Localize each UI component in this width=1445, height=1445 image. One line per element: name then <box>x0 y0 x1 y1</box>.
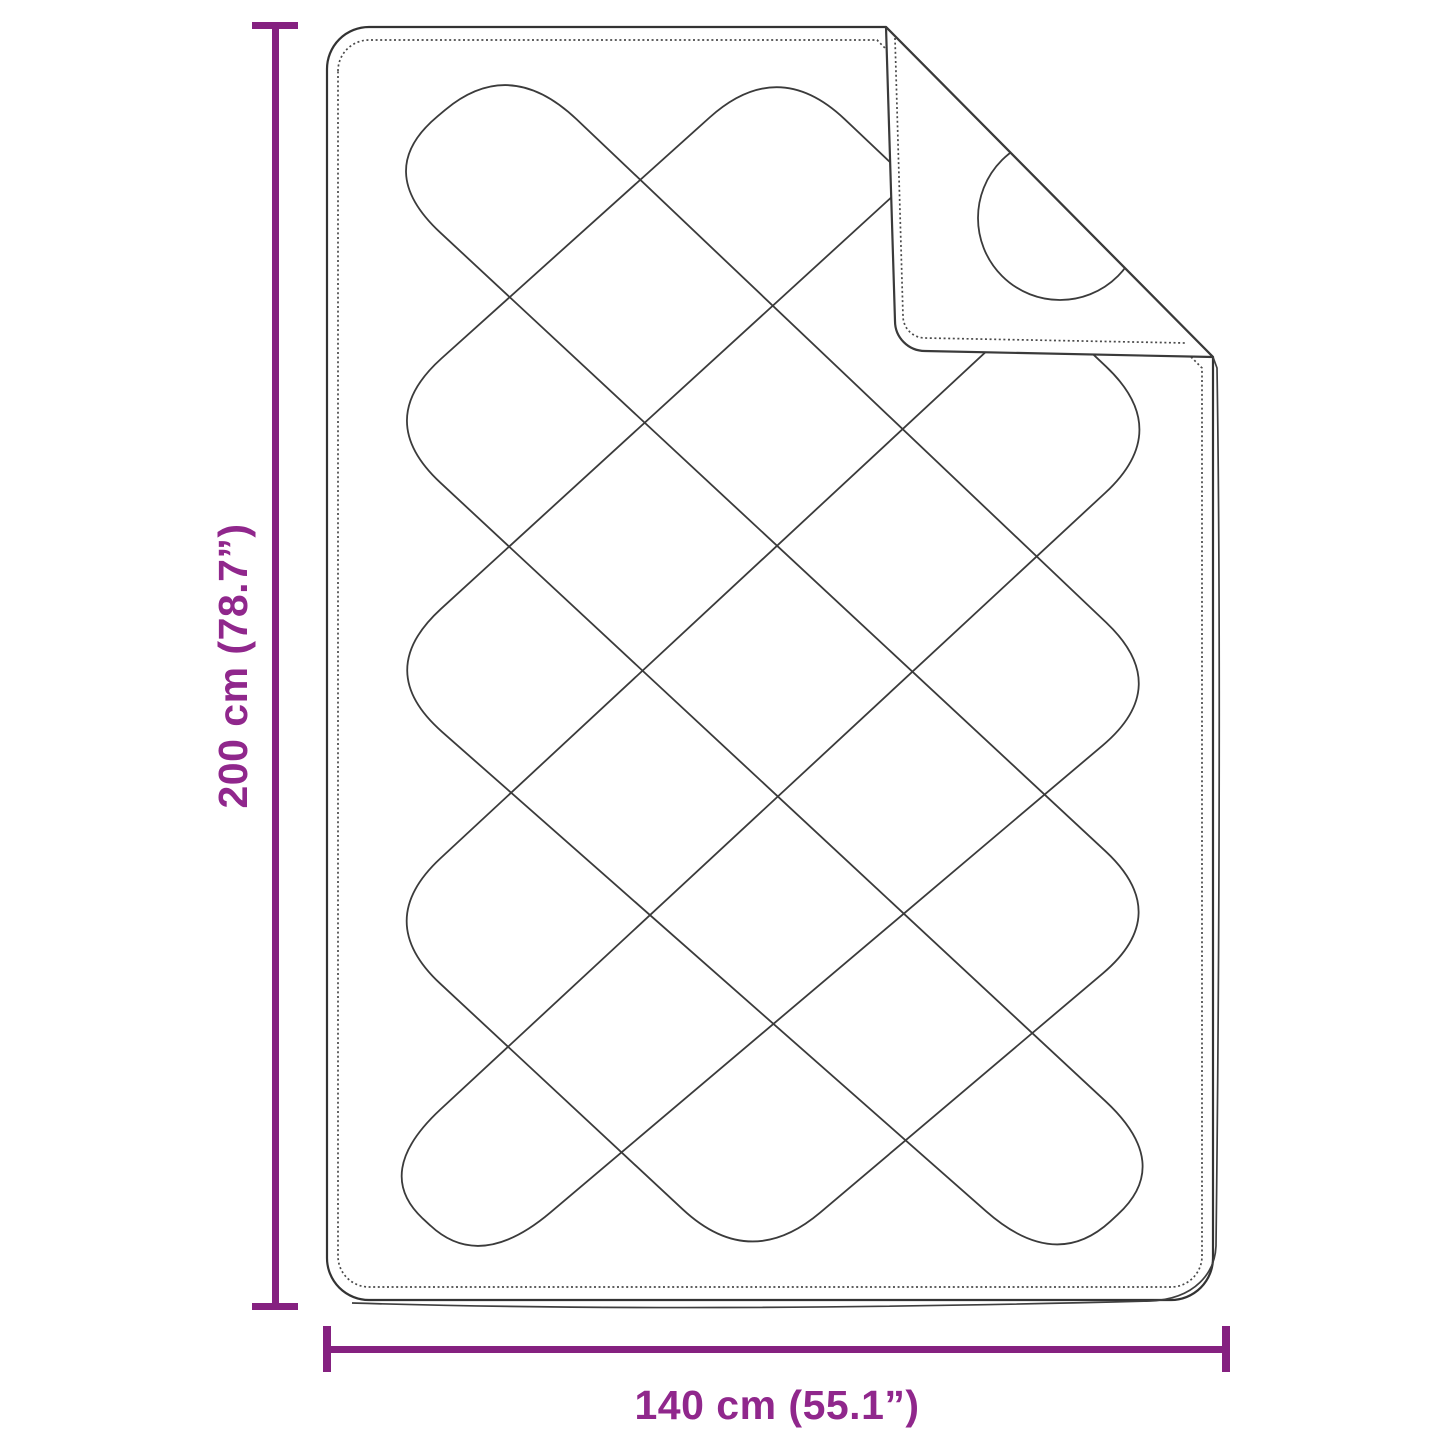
folded-corner <box>886 27 1213 357</box>
width-dimension-label: 140 cm (55.1”) <box>527 1382 1027 1428</box>
width-dimension-cap-right <box>1222 1326 1230 1372</box>
height-dimension-line <box>272 22 279 1310</box>
blanket-dimension-diagram: 200 cm (78.7”) 140 cm (55.1”) <box>0 0 1445 1445</box>
folded-corner-flap <box>886 27 1213 357</box>
blanket-body <box>327 27 1213 1300</box>
height-dimension-label: 200 cm (78.7”) <box>210 466 256 866</box>
width-dimension-cap-left <box>323 1326 331 1372</box>
width-dimension-line <box>324 1346 1230 1353</box>
height-dimension-cap-top <box>252 22 298 29</box>
height-dimension-cap-bottom <box>252 1303 298 1310</box>
